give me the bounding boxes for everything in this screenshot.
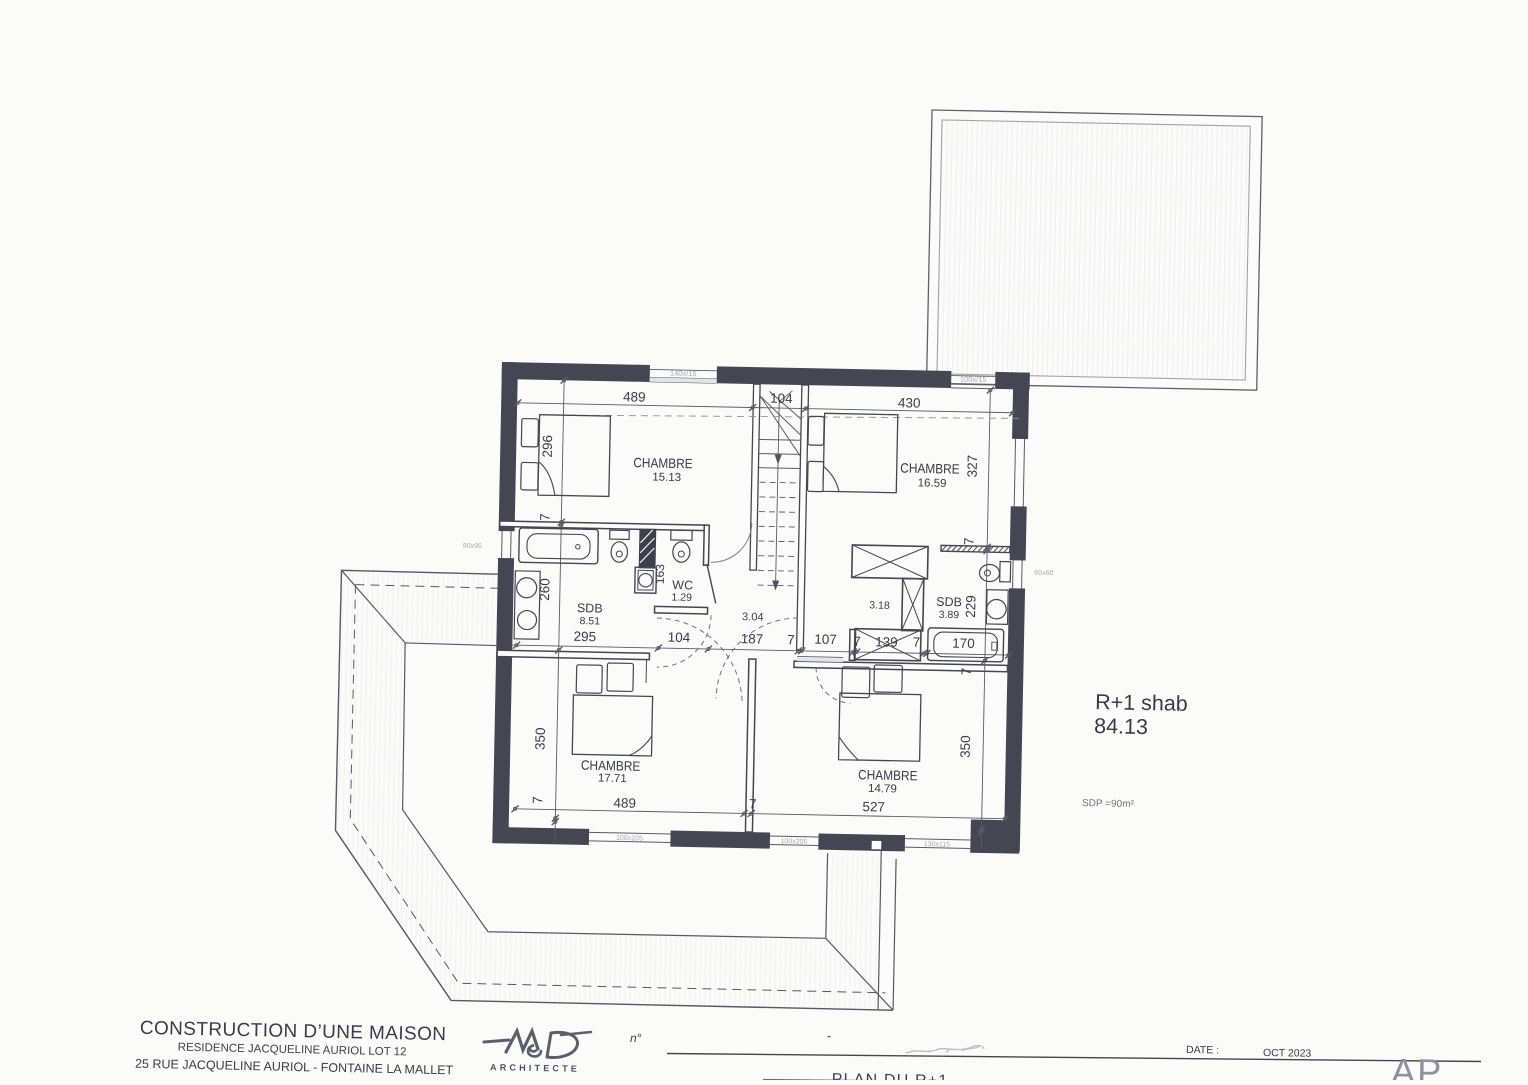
svg-text:WC: WC <box>672 578 693 592</box>
svg-text:350: 350 <box>958 735 973 758</box>
svg-text:170: 170 <box>952 636 975 651</box>
svg-text:104: 104 <box>770 391 793 406</box>
svg-text:100x205: 100x205 <box>616 835 643 843</box>
svg-text:7: 7 <box>530 796 545 804</box>
svg-text:130x115: 130x115 <box>924 841 951 849</box>
svg-text:3.89: 3.89 <box>939 609 960 621</box>
svg-text:527: 527 <box>862 799 885 814</box>
svg-text:140x/15: 140x/15 <box>670 369 697 379</box>
svg-text:187: 187 <box>741 631 764 646</box>
svg-text:CHAMBRE: CHAMBRE <box>581 757 641 774</box>
svg-text:295: 295 <box>573 629 596 644</box>
svg-text:n°: n° <box>630 1031 642 1045</box>
svg-text:7: 7 <box>959 668 974 676</box>
svg-text:90x95: 90x95 <box>463 543 482 550</box>
svg-text:7: 7 <box>537 513 552 521</box>
svg-text:-: - <box>827 1028 832 1043</box>
svg-text:SDB: SDB <box>577 601 603 616</box>
svg-text:7: 7 <box>961 537 976 545</box>
svg-text:CHAMBRE: CHAMBRE <box>900 460 960 477</box>
svg-text:107: 107 <box>814 632 837 647</box>
svg-text:15.13: 15.13 <box>652 472 681 485</box>
svg-text:100x/15: 100x/15 <box>960 374 987 384</box>
svg-text:100x205: 100x205 <box>780 838 807 846</box>
svg-text:8.51: 8.51 <box>579 615 600 627</box>
svg-text:1.29: 1.29 <box>671 591 692 603</box>
svg-text:AP: AP <box>1391 1051 1444 1080</box>
svg-text:14.79: 14.79 <box>868 783 897 796</box>
svg-text:7: 7 <box>787 632 795 647</box>
svg-text:104: 104 <box>668 630 691 645</box>
svg-text:7: 7 <box>913 635 921 650</box>
svg-text:SDB: SDB <box>936 595 962 610</box>
svg-text:ARCHITECTE: ARCHITECTE <box>490 1062 580 1074</box>
svg-text:296: 296 <box>540 435 555 458</box>
svg-text:CHAMBRE: CHAMBRE <box>633 454 693 471</box>
svg-text:430: 430 <box>898 395 921 410</box>
svg-text:350: 350 <box>533 727 548 750</box>
svg-text:16.59: 16.59 <box>918 477 947 490</box>
svg-text:3.04: 3.04 <box>742 611 764 623</box>
svg-text:OCT 2023: OCT 2023 <box>1263 1047 1312 1060</box>
svg-text:327: 327 <box>965 455 980 478</box>
svg-text:3.18: 3.18 <box>869 599 890 611</box>
svg-text:CHAMBRE: CHAMBRE <box>858 766 918 783</box>
svg-text:84.13: 84.13 <box>1094 714 1148 739</box>
svg-text:SDP =90m²: SDP =90m² <box>1082 798 1135 810</box>
svg-text:7: 7 <box>749 796 757 811</box>
svg-text:60x60: 60x60 <box>1034 570 1053 577</box>
svg-text:PLAN DU R+1: PLAN DU R+1 <box>832 1071 949 1080</box>
svg-text:489: 489 <box>613 795 636 810</box>
svg-text:17.71: 17.71 <box>598 773 627 786</box>
svg-text:163: 163 <box>653 564 667 585</box>
svg-text:229: 229 <box>963 595 978 618</box>
svg-text:R+1 shab: R+1 shab <box>1095 690 1188 716</box>
svg-text:DATE :: DATE : <box>1186 1044 1219 1056</box>
svg-text:489: 489 <box>623 389 646 404</box>
